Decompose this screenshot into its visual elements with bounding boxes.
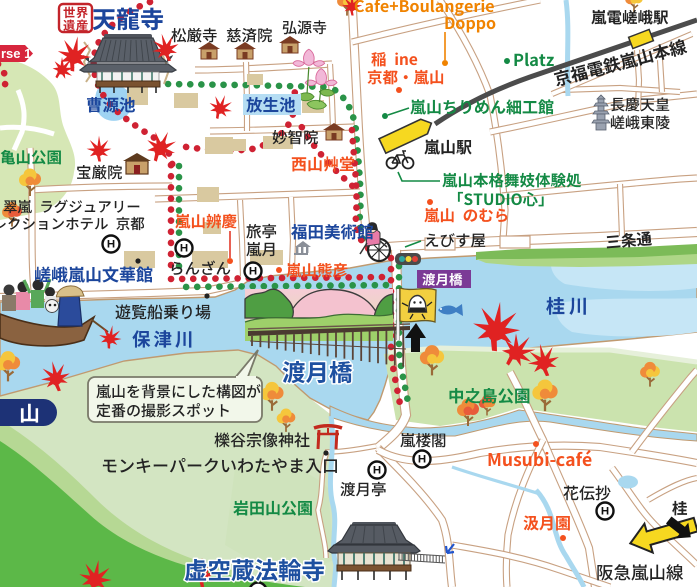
svg-text:H: H — [373, 465, 381, 477]
svg-text:H: H — [601, 506, 609, 518]
svg-text:H: H — [249, 266, 257, 278]
svg-text:rse 1: rse 1 — [1, 46, 31, 61]
svg-text:H: H — [418, 454, 426, 466]
svg-text:H: H — [107, 239, 115, 251]
svg-text:H: H — [180, 243, 188, 255]
